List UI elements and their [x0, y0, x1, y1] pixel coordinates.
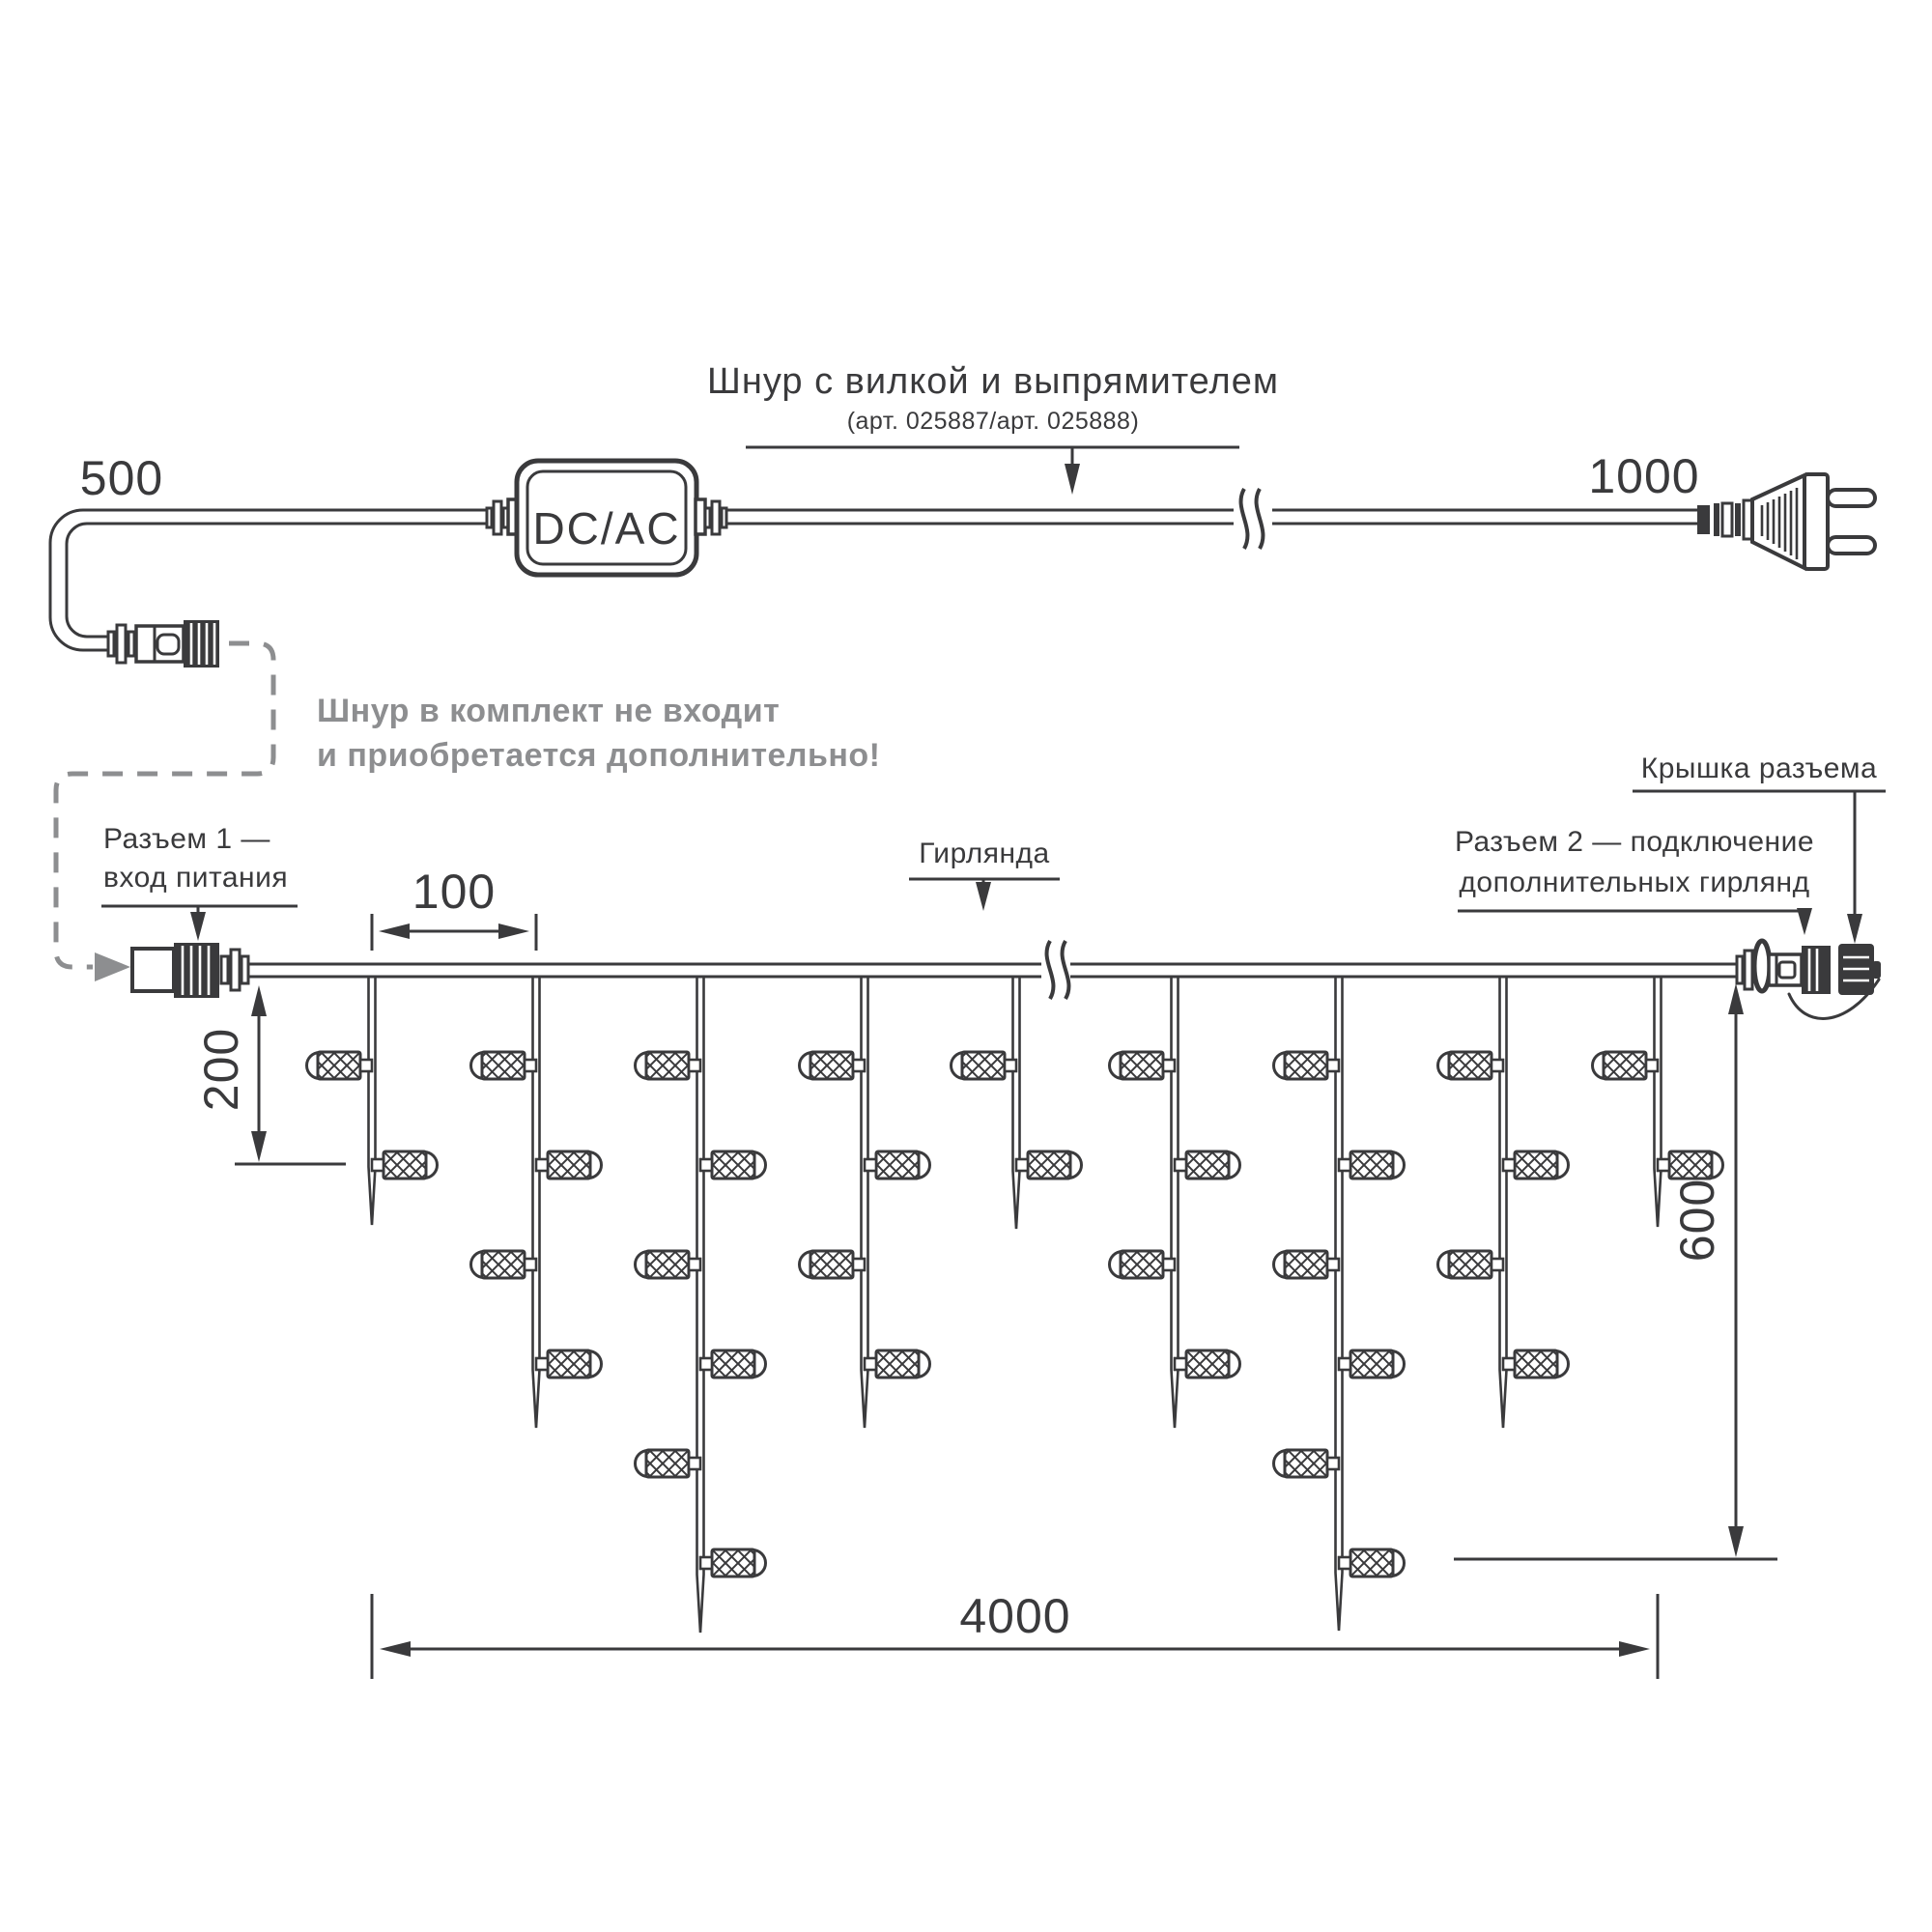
led-bulb-icon: [1274, 1251, 1340, 1278]
dcac-label: DC/AC: [532, 503, 680, 554]
garland-drop: [636, 978, 766, 1633]
cord-subtitle: (арт. 025887/арт. 025888): [847, 408, 1140, 435]
connector-cap-label: Крышка разъема: [1641, 753, 1877, 784]
garland-diagram: DC/AC: [0, 0, 1932, 1932]
led-bulb-icon: [536, 1151, 602, 1179]
dim-4000-text: 4000: [959, 1589, 1070, 1643]
dim-100-text: 100: [412, 865, 496, 919]
dashed-arrowhead-icon: [95, 952, 130, 981]
garland-break-icon: [1047, 941, 1069, 999]
garland-drop: [471, 978, 602, 1428]
led-bulb-icon: [865, 1151, 930, 1179]
connector1-label-line2: вход питания: [103, 862, 288, 894]
garland-drop: [1438, 978, 1569, 1428]
led-bulb-icon: [636, 1450, 701, 1477]
garland-drop: [800, 978, 930, 1428]
led-bulb-icon: [1274, 1450, 1340, 1477]
led-bulb-icon: [700, 1350, 766, 1378]
dimension-4000: 4000: [372, 1589, 1658, 1679]
not-included-note-line2: и приобретается дополнительно!: [317, 737, 881, 774]
led-bulb-icon: [1339, 1151, 1405, 1179]
led-bulb-icon: [1016, 1151, 1082, 1179]
led-bulb-icon: [800, 1052, 866, 1079]
connector-2: [1737, 941, 1881, 1018]
led-bulb-icon: [1339, 1350, 1405, 1378]
connector2-label-line2: дополнительных гирлянд: [1459, 867, 1809, 898]
dim-200-text: 200: [194, 1028, 248, 1111]
garland-drop: [1274, 978, 1405, 1631]
led-bulb-icon: [1110, 1052, 1176, 1079]
led-bulb-icon: [1274, 1052, 1340, 1079]
led-bulb-icon: [1593, 1052, 1659, 1079]
leader-cord-title: [746, 447, 1239, 495]
led-bulb-icon: [636, 1251, 701, 1278]
connector-1: [132, 943, 248, 998]
led-bulb-icon: [636, 1052, 701, 1079]
cord-break-icon: [1241, 489, 1264, 549]
led-bulb-icon: [536, 1350, 602, 1378]
led-bulb-icon: [1175, 1151, 1240, 1179]
dim-1000-text: 1000: [1588, 449, 1699, 503]
led-bulb-icon: [700, 1549, 766, 1577]
leader-connector1: [101, 906, 298, 941]
garland-drop: [952, 978, 1082, 1229]
led-bulb-icon: [372, 1151, 438, 1179]
led-bulb-icon: [307, 1052, 373, 1079]
dim-500-text: 500: [80, 451, 163, 505]
led-bulb-icon: [952, 1052, 1017, 1079]
garland-drop: [1110, 978, 1240, 1428]
connector2-label-line1: Разъем 2 — подключение: [1455, 826, 1814, 858]
not-included-note-line1: Шнур в комплект не входит: [317, 693, 780, 729]
garland-drops: [307, 978, 1723, 1633]
led-bulb-icon: [865, 1350, 930, 1378]
garland-wire: [249, 941, 1736, 999]
led-bulb-icon: [1503, 1350, 1569, 1378]
led-bulb-icon: [1658, 1151, 1723, 1179]
cord-title: Шнур с вилкой и выпрямителем: [707, 361, 1279, 402]
led-bulb-icon: [700, 1151, 766, 1179]
cord-right-section: [726, 489, 1697, 549]
led-bulb-icon: [800, 1251, 866, 1278]
dashed-route: [56, 643, 273, 981]
power-plug-icon: [1697, 474, 1875, 569]
led-bulb-icon: [471, 1251, 537, 1278]
garland-drop: [307, 978, 438, 1225]
garland-label: Гирлянда: [919, 838, 1049, 869]
led-bulb-icon: [1503, 1151, 1569, 1179]
led-bulb-icon: [471, 1052, 537, 1079]
led-bulb-icon: [1110, 1251, 1176, 1278]
led-bulb-icon: [1438, 1251, 1504, 1278]
leader-connector2: [1458, 908, 1812, 935]
diagram-svg: DC/AC: [0, 0, 1932, 1932]
led-bulb-icon: [1339, 1549, 1405, 1577]
connector1-label-line1: Разъем 1 —: [103, 823, 270, 855]
dim-600-text: 600: [1670, 1179, 1724, 1262]
leader-garland: [909, 879, 1060, 911]
dcac-converter-box: DC/AC: [487, 461, 726, 575]
dimension-100: 100: [372, 865, 536, 951]
cord-output-connector: [108, 620, 219, 668]
led-bulb-icon: [1175, 1350, 1240, 1378]
led-bulb-icon: [1438, 1052, 1504, 1079]
